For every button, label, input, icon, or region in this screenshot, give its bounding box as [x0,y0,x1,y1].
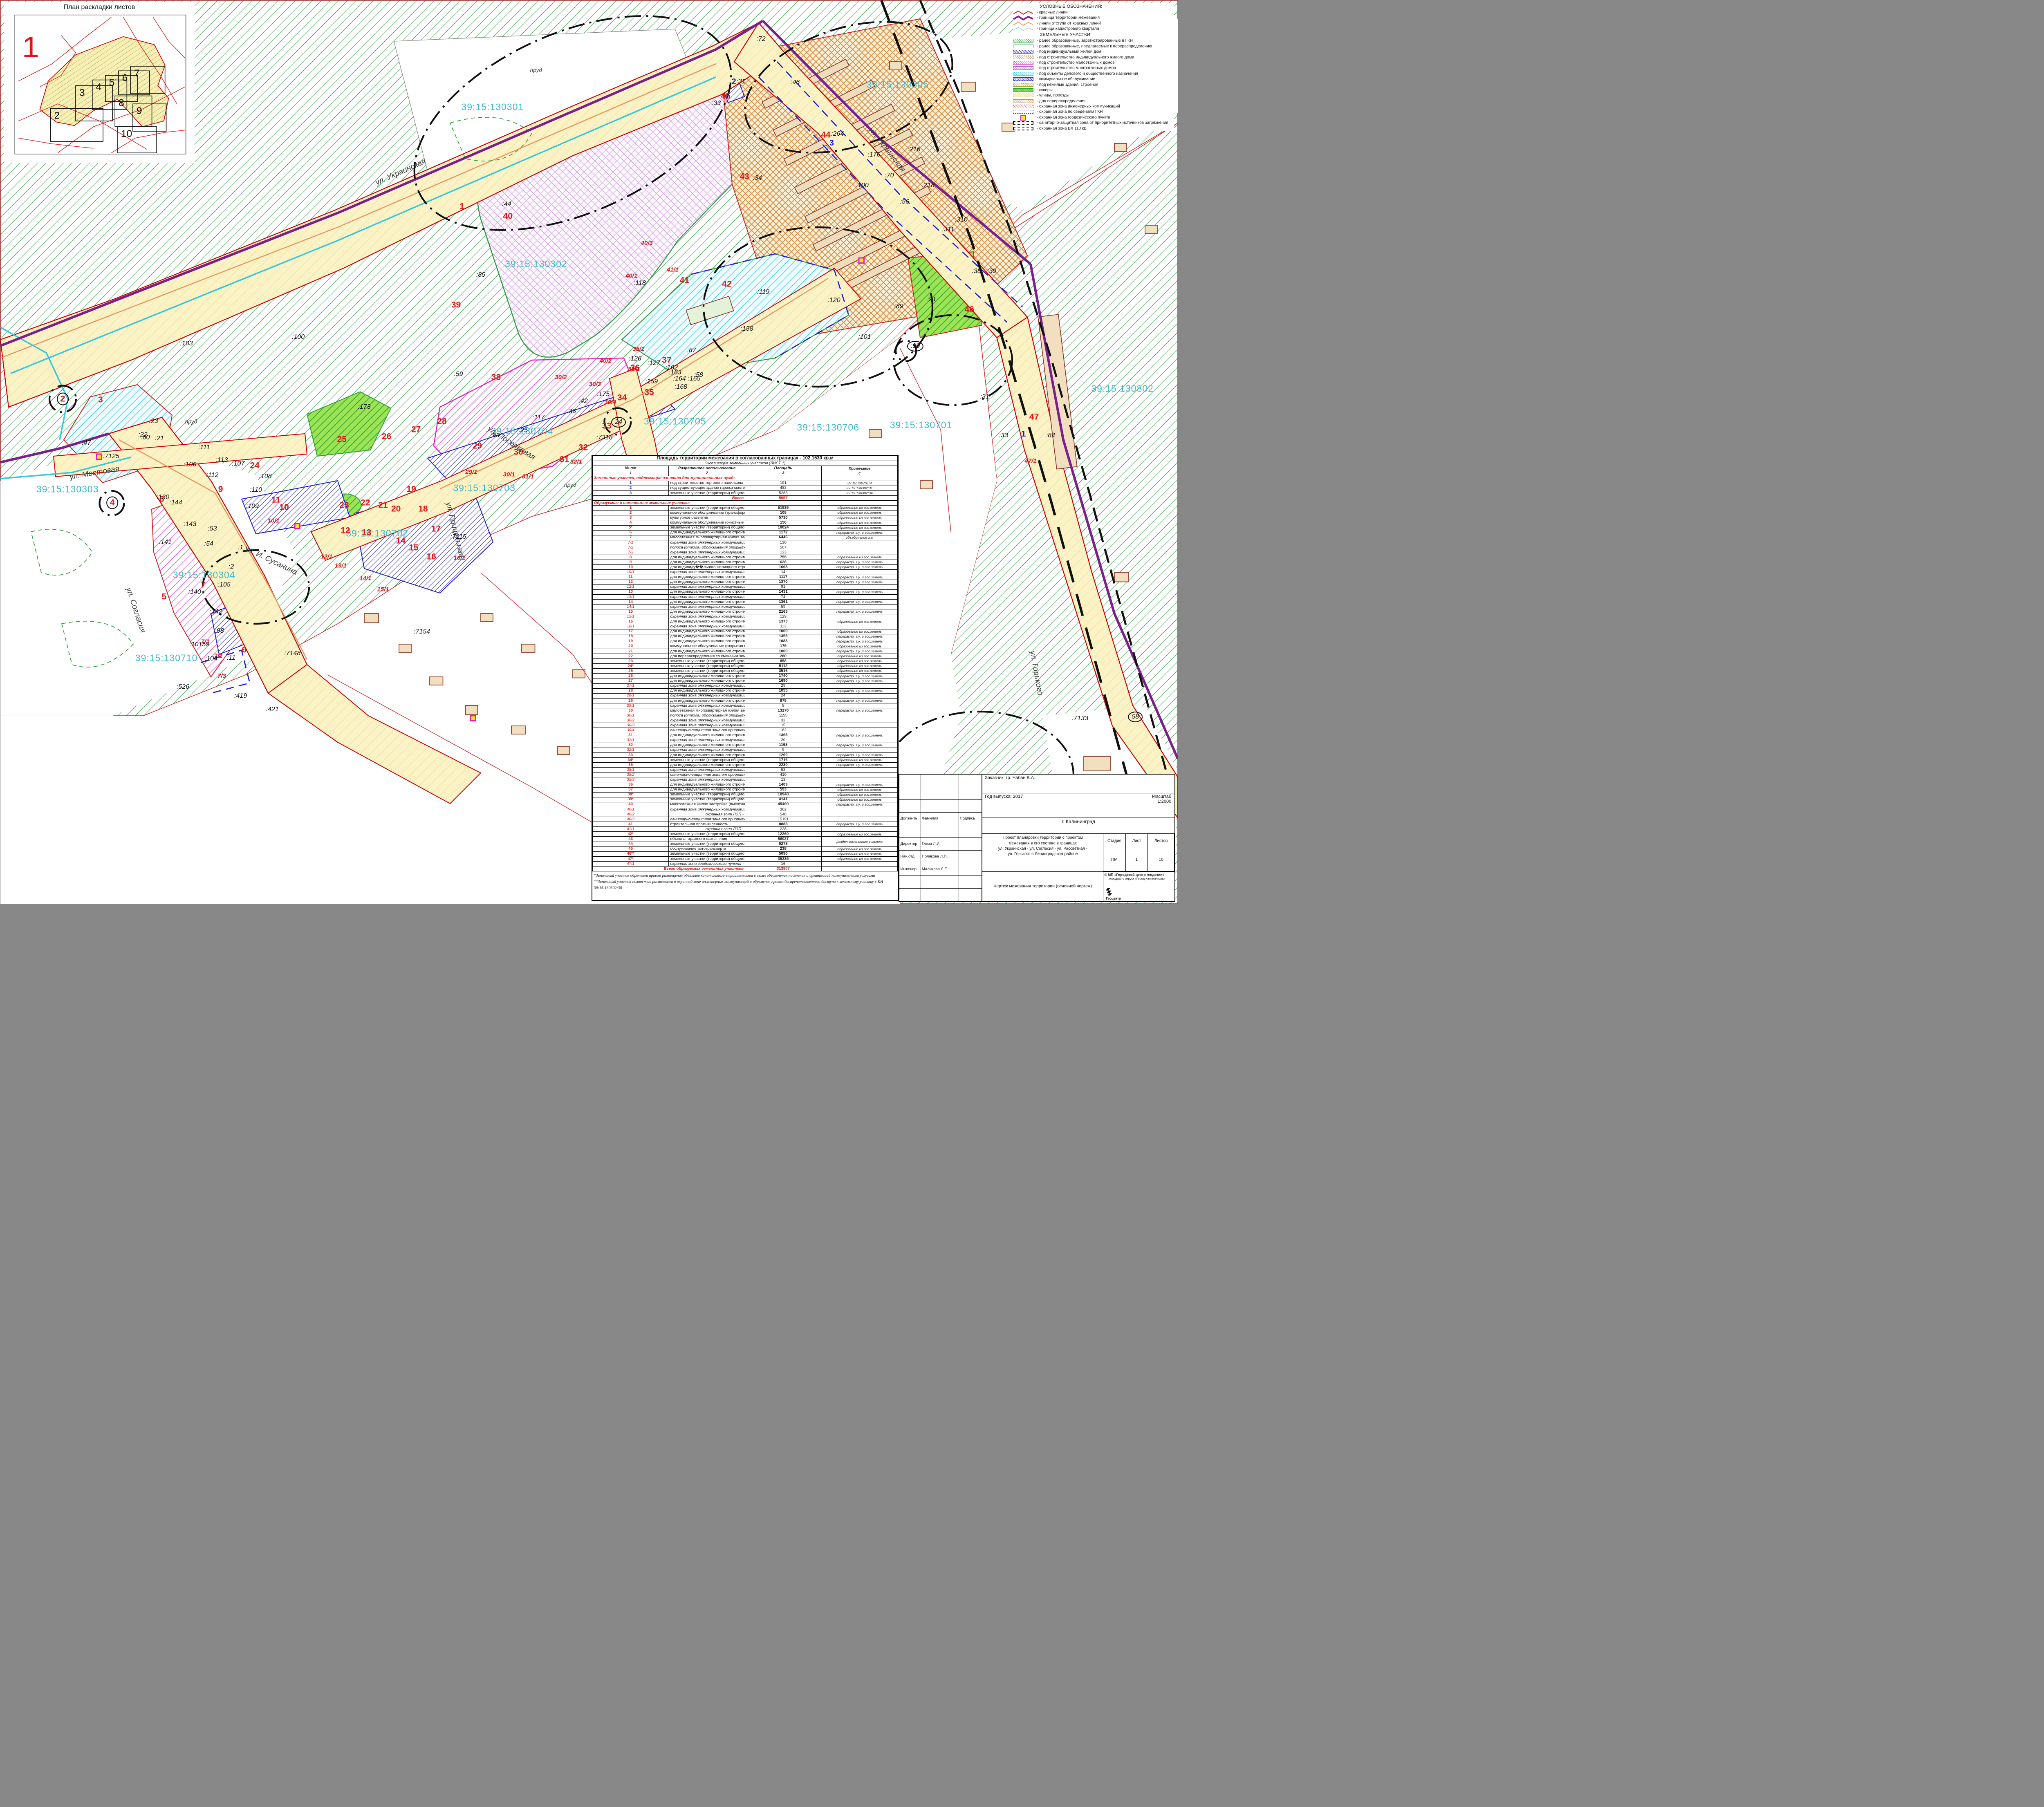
inset-sheet-number: 2 [54,110,60,121]
table-row: 30малоэтажная многоквартирная жилая заст… [592,708,898,713]
table-cell: охранная зона инженерных коммуникаций - [669,693,745,698]
table-cell: для перераспределения со смежным земельн… [669,654,745,659]
legend-swatch [1013,83,1033,87]
table-cell: 3 [592,490,669,495]
legend-area-label: - охранная зона по сведениям ГКН [1037,110,1103,114]
table-cell: 16/1 [592,624,669,629]
table-cell: земельные участки (территории) общего по… [669,659,745,664]
legend-line-item: - линии отступа от красных линий [1013,20,1174,26]
table-cell: 1690 [745,678,822,683]
table-cell: перераспр. з.у. и гос.земель [821,649,898,654]
table-cell [821,605,898,609]
table-cell: 755 [745,555,822,560]
table-cell: перераспр. з.у. и гос.земель [821,575,898,580]
table-cell: перераспр. з.у. и гос.земель [821,678,898,683]
legend-swatch [1013,99,1033,103]
table-cell: 875 [745,698,822,703]
table-row: 7малоэтажная многоквартирная жилая застр… [592,535,898,540]
table-row: 40/1охранная зона инженерных коммуникаци… [592,807,898,812]
table-cell: 1198 [745,743,822,748]
legend-swatch [1013,50,1033,54]
table-row: 22для перераспределения со смежным земел… [592,654,898,659]
table-cell: 4 [592,520,669,525]
project-line3: ул. Украинская - ул. Согласия - ул. Расс… [984,846,1101,851]
table-row: 31для индивидуального жилищного строител… [592,733,898,738]
table-cell: 41 [592,822,669,827]
table-cell: для индивидуального жилищного строительс… [669,752,745,757]
table-cell: 5283 [745,490,822,495]
project-line4: ул. Горького в Ленинградском районе [984,851,1101,857]
table-row: 28для индивидуального жилищного строител… [592,688,898,693]
legend-area-label: - скверы [1037,88,1053,92]
table-cell: 2 [592,511,669,515]
table-cell: объекты гаражного назначения [669,837,745,842]
table-row: 27для индивидуального жилищного строител… [592,678,898,683]
table-cell: 31/1 [592,738,669,743]
table-row: 2коммунальное обслуживание (трансформато… [592,511,898,515]
geocentr-logo: Геоцентр [1106,887,1121,900]
scale-value: 1:2000 [1158,799,1172,804]
table-cell: 5090 [745,851,822,856]
table-cell: 179 [745,644,822,649]
table-row: 7/2полоса (отвода) обслуживания открытой… [592,545,898,550]
legend-area-item: - скверы [1013,87,1174,93]
legend-area-item: - для перераспределения [1013,98,1174,103]
project-row: Проект планировки территории с проектом … [982,834,1174,872]
table-cell: 1361 [745,599,822,604]
table-cell [821,718,898,723]
table-cell: 182 [745,728,822,733]
table-cell: культурное развитие [669,515,745,520]
table-cell: 1055 [745,688,822,693]
table-cell: 38* [592,792,669,797]
table-cell: 280 [745,654,822,659]
table-cell: 26 [592,674,669,678]
table-cell: 628 [745,560,822,565]
table-cell: 40/1 [592,807,669,812]
table-cell: 11 [592,575,669,580]
legend-area-label: - охранная зона инженерных коммуникаций [1037,104,1120,109]
staff-cell [959,876,982,889]
legend-area-item: - ранее образованные, зарегистрированные… [1013,38,1174,43]
table-cell: 14/1 [592,605,669,609]
table-cell: 19 [592,639,669,644]
table-cell: 31 [592,733,669,738]
staff-table: Должн-тьФамилияПодписьДиректорГлеза Л.И.… [899,775,982,901]
table-cell: образование из гос.земель [821,525,898,530]
table-cell: образование из гос.земель [821,832,898,837]
legend-area-label: - под нежилые здания, строения [1037,83,1098,87]
table-cell: 1 [592,506,669,511]
table-cell: 1000 [745,649,822,654]
staff-cell: Маликова Л.Е. [921,863,959,876]
inset-sheet-number: 4 [96,82,101,93]
table-row: Экспликация земельных участков (ЛИСТ 1) [592,461,898,466]
table-cell: охранная зона инженерных коммуникаций - [669,540,745,545]
table-cell: 23 [592,659,669,664]
table-cell: образование из гос.земель [821,629,898,634]
table-cell: 8 [592,555,669,560]
table-row: 12/1охранная зона инженерных коммуникаци… [592,584,898,589]
table-row: 35для индивидуального жилищного строител… [592,763,898,768]
staff-cell [921,775,959,787]
table-cell: 33 [592,752,669,757]
table-cell: 40/2 [592,812,669,817]
table-cell: для индивидуального жилищного строительс… [669,530,745,535]
table-row: 14для индивидуального жилищного строител… [592,599,898,604]
table-cell: 32 [745,718,822,723]
table-cell: 27 [592,678,669,683]
city-row: г. Калининград [982,817,1174,834]
table-cell: коммунальное обслуживание (очистные дожд… [669,520,745,525]
table-row: Всего образуемых земельных участков31390… [592,867,898,871]
table-cell: 1155 [745,713,822,718]
table-cell: 362 [745,807,822,812]
table-row: 15для индивидуального жилищного строител… [592,609,898,614]
table-cell: 1373 [745,619,822,624]
table-row: 35/3охранная зона инженерных коммуникаци… [592,777,898,782]
table-row: 1234 [592,471,898,476]
legend-area-label: - охранная зона ВЛ 110 кВ [1037,126,1087,131]
table-cell: для индивидуального жилищного строительс… [669,743,745,748]
table-row: 32/1охранная зона инженерных коммуникаци… [592,748,898,752]
table-cell: перераспр. з.у. и гос.земель [821,565,898,570]
table-row: 7/3охранная зона инженерных коммуникаций… [592,550,898,555]
table-cell: земельные участки (территории) общего по… [669,792,745,797]
table-cell: образование из гос.земель [821,851,898,856]
inset-sheet-number: 5 [109,77,114,88]
table-cell: 10 [592,565,669,570]
table-cell: 4 [821,471,898,476]
table-cell: охранная зона инженерных коммуникаций - [669,768,745,773]
table-cell [821,693,898,698]
table-cell: 858 [745,659,822,664]
legend-swatch [1013,61,1033,65]
table-cell: 13 [592,589,669,594]
table-cell: 41/1 [592,827,669,832]
legend-area-item: - санитарно-защитная зона от приоритетны… [1013,120,1174,125]
table-cell: 42* [592,832,669,837]
staff-cell [899,825,921,838]
table-cell: 74 [745,594,822,599]
table-row: 27/1охранная зона инженерных коммуникаци… [592,683,898,688]
table-cell [821,812,898,817]
table-cell: перераспр. з.у. и гос.земель [821,822,898,827]
table-cell: 10/1 [592,570,669,575]
table-cell: строительная промышленность [669,822,745,827]
table-cell: 1 [592,481,669,486]
legend-line-label: - красные линии [1037,10,1068,15]
table-cell: 5 [745,703,822,708]
legend-swatch [1013,66,1033,70]
table-cell: земельные участки (территории) общего по… [669,757,745,762]
table-row: Земельные участки, подлежащие изъятию дл… [592,476,898,481]
legend-swatch [1013,105,1033,108]
table-row: 19для индивидуального жилищного строител… [592,639,898,644]
table-cell: для индивиду��льного жилищного строитель… [669,565,745,570]
table-cell: Всего [592,496,745,501]
table-cell [821,614,898,619]
table-cell [821,594,898,599]
legend-area-item: - охранная зона по сведениям ГКН [1013,109,1174,114]
table-cell: 10024 [745,525,822,530]
table-cell: образование из гос.земель [821,664,898,669]
table-cell: 5957 [745,496,822,501]
table-cell: охранная зона инженерных коммуникаций - [669,614,745,619]
table-row: 15/1охранная зона инженерных коммуникаци… [592,614,898,619]
table-row: 41строительная промышленность8888перерас… [592,822,898,827]
inset-sheet-number: 3 [79,87,85,98]
staff-cell: Полякова Л.П. [921,851,959,863]
table-row: 34*земельные участки (территории) общего… [592,757,898,762]
table-row: 3культурное развитие5730образование из г… [592,515,898,520]
table-cell: 3 [745,471,822,476]
table-row: 10для индивиду��льного жилищного строите… [592,565,898,570]
legend-title: УСЛОВНЫЕ ОБОЗНАЧЕНИЯ: [1040,4,1174,9]
table-cell: перераспр. з.у. и гос.земель [821,674,898,678]
table-cell: для индивидуального жилищного строительс… [669,629,745,634]
table-cell [821,550,898,555]
table-cell: 593 [745,787,822,792]
table-cell: 35/3 [592,777,669,782]
table-cell [821,867,898,871]
table-cell: 1668 [745,565,822,570]
table-cell [821,476,898,481]
legend-swatch [1013,94,1033,97]
table-cell: коммунальное обслуживание (открытая осуш… [669,644,745,649]
table-cell: 37 [592,787,669,792]
project-line2: межевания в его составе в границах [984,841,1101,846]
staff-cell [921,800,959,813]
table-cell: 2230 [745,763,822,768]
table-cell: 15/1 [592,614,669,619]
table-cell: 5278 [745,842,822,846]
table-cell: образование из гос.земель [821,619,898,624]
table-cell: для индивидуального жилищного строительс… [669,763,745,768]
table-cell: малоэтажная многоквартирная жилая застро… [669,708,745,713]
table-cell: Площадь территории межевания в согласова… [592,456,898,461]
customer-row: Заказчик: гр. Чабан В.А. [982,775,1174,793]
staff-cell: Нач.отд. [899,851,921,863]
legend-line-sample [1013,26,1033,31]
staff-cell [959,787,982,800]
table-cell: 483 [745,486,822,490]
table-cell: 1409 [745,782,822,787]
table-cell: образование из гос.земель [821,511,898,515]
table-row: 14/1охранная зона инженерных коммуникаци… [592,605,898,609]
table-cell: для индивидуального жилищного строительс… [669,733,745,738]
staff-cell: Глеза Л.И. [921,838,959,851]
legend-area-label: - под индивидуальный жилой дом [1037,49,1101,54]
legend-area-label: - для перераспределения [1037,99,1086,103]
table-cell: под существующее здание гаража-мастерско… [669,486,745,490]
table-cell: 28 [592,688,669,693]
table-cell: 20 [745,738,822,743]
table-row: 18для индивидуального жилищного строител… [592,634,898,639]
table-cell: 12/1 [592,584,669,589]
table-cell: охранная зона инженерных коммуникаций - [669,748,745,752]
staff-cell [921,889,959,901]
table-cell: раздел земельного участка [821,837,898,846]
legend-area-item: - под объекты делового и общественного н… [1013,71,1174,76]
staff-cell [899,775,921,787]
legend-area-item: - ранее образованные, предлагаемые к пер… [1013,44,1174,49]
scale-word: Масштаб [1152,794,1171,799]
table-cell: 3516 [745,669,822,674]
legend-area-item: - под индивидуальный жилой дом [1013,49,1174,54]
table-cell: 25 [592,669,669,674]
table-cell: 29 [592,698,669,703]
table-cell: 30/3 [592,723,669,728]
table-row: 16/1охранная зона инженерных коммуникаци… [592,624,898,629]
sheets-value: 10 [1148,848,1174,871]
legend-area-label: - под строительство многоэтажных домов [1037,66,1116,70]
table-cell: 7 [592,535,669,540]
sheet-label: Лист [1126,834,1148,848]
table-cell: 6 [592,530,669,535]
expl-table: Площадь территории межевания в согласова… [592,456,898,872]
geocentr-logo-glyph [1106,887,1115,896]
staff-cell [921,787,959,800]
legend-line-item: - красные линии [1013,10,1174,15]
table-cell: 1431 [745,589,822,594]
table-cell: 34* [592,757,669,762]
inset-map: 1 2345678910 [4,13,195,162]
table-row: Всего5957 [592,496,898,501]
table-row: 28/1охранная зона инженерных коммуникаци… [592,693,898,698]
table-cell: охранная зона инженерных коммуникаций - [669,718,745,723]
table-cell: 56027 [745,837,822,842]
table-cell: перераспр. з.у. и гос.земель [821,609,898,614]
table-row: Образуемые и изменяемые земельные участк… [592,501,898,506]
table-cell: для индивидуального жилищного строительс… [669,589,745,594]
legend-swatch [1013,72,1033,76]
project-line1: Проект планировки территории с проектом [984,835,1101,840]
table-cell: 29 [745,683,822,688]
table-cell: 39:15:130302:34 [821,490,898,495]
table-cell: 129 [745,614,822,619]
table-cell: перераспр. з.у. и гос.земель [821,560,898,565]
table-cell: 91 [745,584,822,589]
legend-area-item: - под строительство индивидуального жило… [1013,54,1174,60]
table-cell: 24 [745,693,822,698]
inset-sheet-number: 6 [122,73,128,83]
table-cell: для индивидуального жилищного строительс… [669,639,745,644]
table-row: 33для индивидуального жилищного строител… [592,752,898,757]
legend-area-label: - улицы, проезды [1037,93,1069,98]
table-row: 36для индивидуального жилищного строител… [592,782,898,787]
table-footnotes: *Земельный участок обременен правом разм… [592,871,898,893]
table-cell: 150 [745,520,822,525]
table-row: 35/1охранная зона инженерных коммуникаци… [592,768,898,773]
table-cell [821,501,898,506]
table-cell: образование из гос.земель [821,515,898,520]
staff-cell: Должн-ть [899,813,921,825]
table-cell [821,545,898,550]
table-cell: 47/1 [592,861,669,866]
table-cell: охранная зона инженерных коммуникаций - [669,703,745,708]
table-cell: 1355 [745,634,822,639]
legend-swatch [1013,45,1033,48]
year-label: Год выпуска: 2017 [985,794,1023,799]
table-cell: 7/2 [592,545,669,550]
table-row: 38*земельные участки (территории) общего… [592,792,898,797]
table-row: 12для индивидуального жилищного строител… [592,580,898,584]
table-cell: охранная зона инженерных коммуникаций - [669,594,745,599]
table-cell: 8888 [745,822,822,827]
table-cell [821,807,898,812]
drawing-title: Чертеж межевания территории (основной че… [982,872,1103,901]
title-block: Должн-тьФамилияПодписьДиректорГлеза Л.И.… [899,774,1175,902]
legend-area-item: - под строительство многоэтажных домов [1013,65,1174,71]
sheet-layout-inset: План раскладки листов 1 2345678910 [4,2,195,163]
drawing-row: Чертеж межевания территории (основной че… [982,872,1174,901]
table-cell: перераспр. з.у. и гос.земель [821,782,898,787]
table-row: 39*земельные участки (территории) общего… [592,797,898,802]
table-row: 29для индивидуального жилищного строител… [592,698,898,703]
table-cell: земельные участки (территории) общего по… [669,669,745,674]
table-cell [821,703,898,708]
table-row: 40/2охранная зона ЛЭП -548 [592,812,898,817]
table-row: 1под строительство торгового павильона19… [592,481,898,486]
table-cell: 59 [745,605,822,609]
table-cell: образование из гос.земель [821,555,898,560]
table-cell: для индивидуального жилищного строительс… [669,619,745,624]
legend-area-label: - под строительство индивидуального жило… [1037,55,1134,60]
table-row: 26для индивидуального жилищного строител… [592,674,898,678]
legend-line-label: - линии отступа от красных линий [1037,21,1101,26]
table-cell: 5* [592,525,669,530]
table-cell: Экспликация земельных участков (ЛИСТ 1) [592,461,898,466]
table-cell: 53 [745,768,822,773]
table-cell [821,540,898,545]
footnote-2: **Земельный участок полностью расположен… [594,879,896,891]
staff-cell [959,863,982,876]
table-cell [821,861,898,866]
table-cell: 1083 [745,639,822,644]
table-row: 30/1полоса (отвода) обслуживания открыто… [592,713,898,718]
table-cell: образование из гос.земель [821,520,898,525]
table-cell: перераспр. з.у. и гос.земель [821,752,898,757]
table-cell: охранная зона инженерных коммуникаций - [669,807,745,812]
table-cell: 27/1 [592,683,669,688]
table-cell [821,624,898,629]
legend-line-item: - граница кадастрового квартала [1013,26,1174,31]
table-cell: 39:15:130701:4 [821,481,898,486]
table-cell: земельные участки (территории) общего по… [669,851,745,856]
table-row: 47/1охранная зона геодезического пункта … [592,861,898,866]
table-cell: 1365 [745,733,822,738]
table-row: 45обслуживание автотранспорта238образова… [592,846,898,851]
table-cell [821,683,898,688]
table-row: 5*земельные участки (территории) общего … [592,525,898,530]
table-row: 24*земельные участки (территории) общего… [592,664,898,669]
table-row: Площадь территории межевания в согласова… [592,456,898,461]
table-row: 13для индивидуального жилищного строител… [592,589,898,594]
table-cell: образование из гос.земель [821,669,898,674]
table-cell: образование из гос.земель [821,792,898,797]
legend-section-title: ЗЕМЕЛЬНЫЕ УЧАСТКИ: [1040,32,1174,37]
legend-area-item: - улицы, проезды [1013,93,1174,98]
table-cell: образование из гос.земель [821,787,898,792]
legend-area-label: - под строительство малоэтажных домов [1037,60,1115,65]
table-cell: 32 [592,743,669,748]
table-cell: 29/1 [592,703,669,708]
geocentr-logo-text: Геоцентр [1106,897,1121,900]
table-row: 32для индивидуального жилищного строител… [592,743,898,748]
table-cell: 44 [592,842,669,846]
staff-cell [899,800,921,813]
